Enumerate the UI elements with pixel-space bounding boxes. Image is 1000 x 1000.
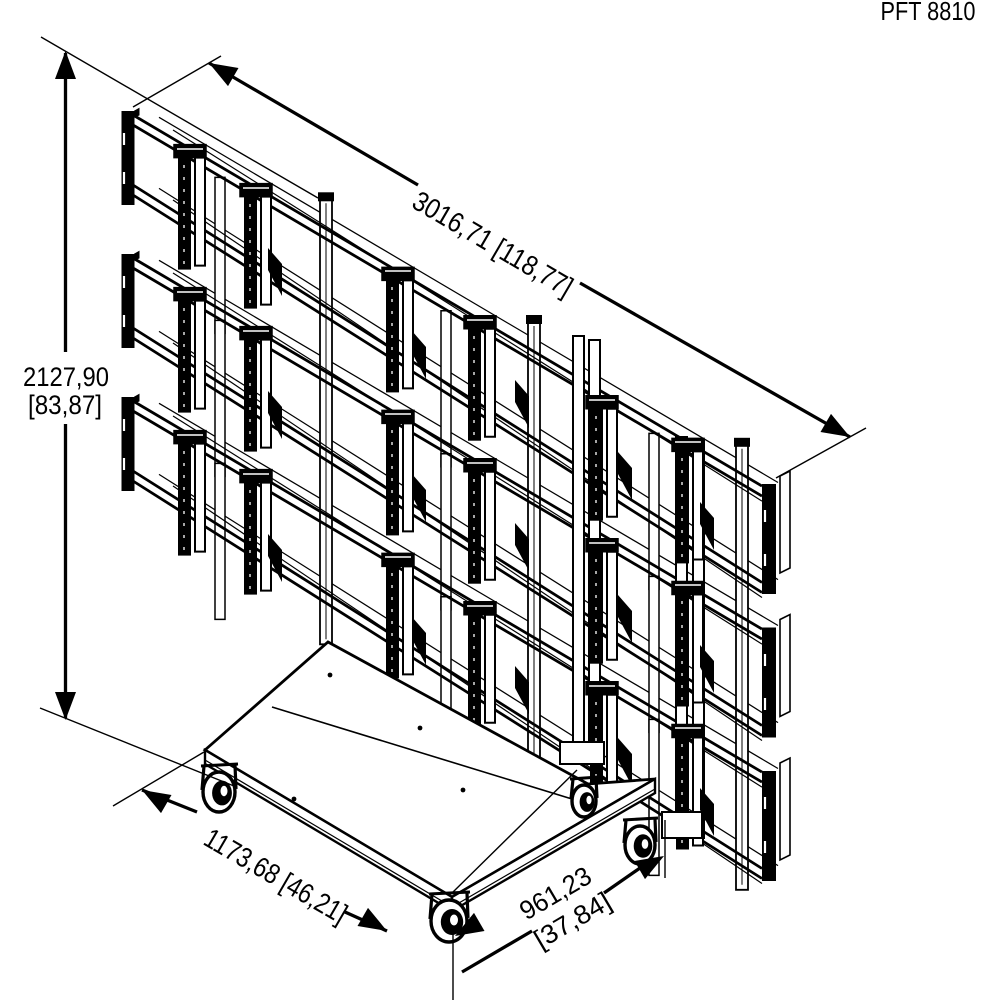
svg-text:PFT 8810: PFT 8810: [881, 0, 976, 26]
svg-text:[83,87]: [83,87]: [28, 390, 102, 420]
svg-text:2127,90: 2127,90: [23, 362, 109, 392]
